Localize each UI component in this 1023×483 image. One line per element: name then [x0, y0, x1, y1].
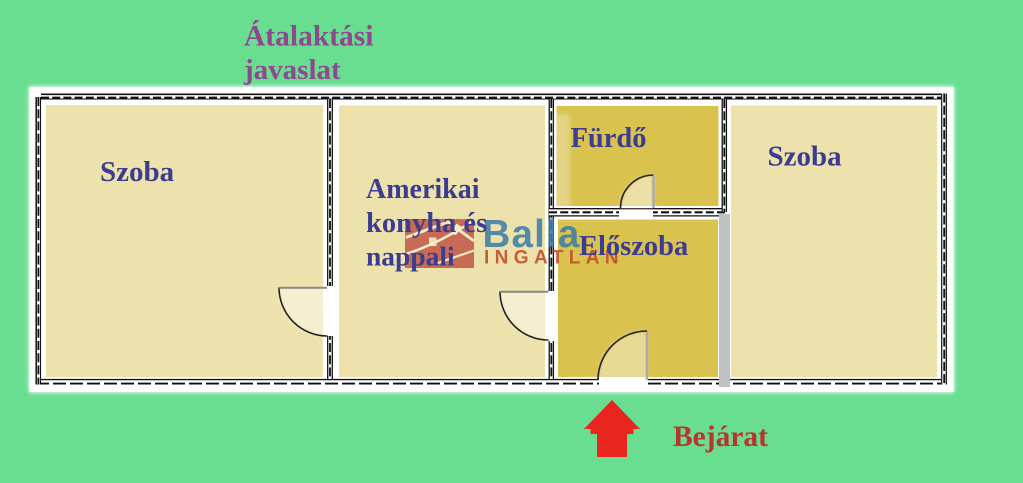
svg-text:javaslat: javaslat — [243, 54, 341, 86]
svg-text:Átalaktási: Átalaktási — [244, 20, 373, 53]
svg-text:Fürdő: Fürdő — [571, 123, 647, 154]
svg-text:Szoba: Szoba — [768, 141, 843, 173]
svg-text:Előszoba: Előszoba — [579, 231, 688, 262]
svg-text:Bejárat: Bejárat — [673, 421, 768, 453]
svg-text:Szoba: Szoba — [100, 156, 175, 188]
svg-text:Amerikai: Amerikai — [366, 174, 480, 205]
svg-text:konyha és: konyha és — [366, 208, 487, 239]
svg-text:nappali: nappali — [366, 241, 455, 272]
